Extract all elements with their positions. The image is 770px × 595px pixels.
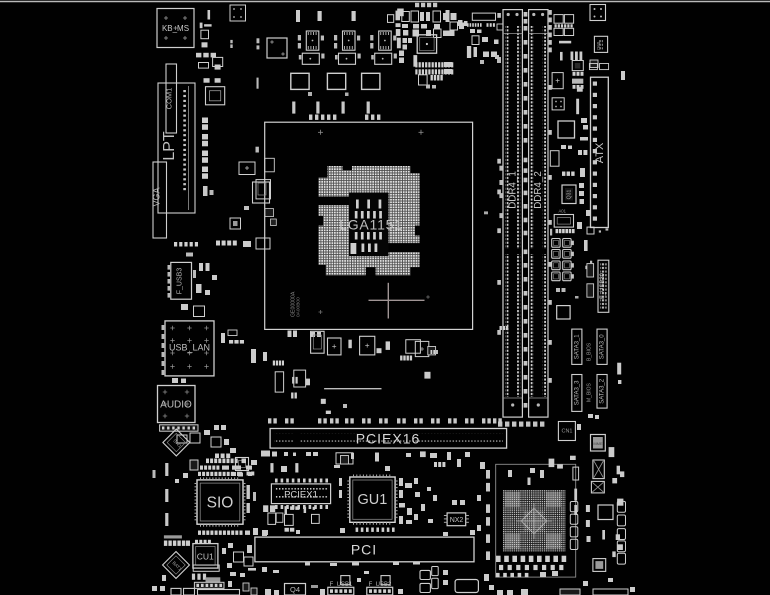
svg-text:SATA3_1: SATA3_1 [574,334,580,359]
svg-text:B_BIOS: B_BIOS [586,342,592,361]
svg-text:F_USB1: F_USB1 [330,582,353,588]
svg-text:PCI: PCI [351,542,377,558]
svg-text:PCIEX16: PCIEX16 [356,431,421,447]
svg-text:Q4: Q4 [290,585,300,594]
svg-text:SATA3_2: SATA3_2 [600,378,606,403]
svg-text:A01: A01 [559,209,567,214]
svg-text:NX2: NX2 [450,517,464,524]
svg-text:F_USB30: F_USB30 [600,272,606,299]
svg-text:LPT: LPT [161,131,178,161]
svg-text:ATX: ATX [594,142,606,163]
svg-text:M_BIOS: M_BIOS [586,382,592,402]
svg-text:F_USB3: F_USB3 [177,268,184,295]
svg-text:Q60: Q60 [596,41,601,50]
svg-text:Q31: Q31 [567,189,573,199]
svg-text:CN1: CN1 [561,429,572,435]
svg-text:COM1: COM1 [165,88,174,110]
svg-text:SATA3_0: SATA3_0 [600,334,606,359]
svg-text:GU1: GU1 [357,492,387,508]
svg-text:CU1: CU1 [197,552,214,562]
svg-text:SATA3_3: SATA3_3 [574,380,580,405]
svg-text:PCIEX1: PCIEX1 [284,490,318,501]
svg-text:0A00B00: 0A00B00 [296,297,302,317]
svg-text:DDR4_2: DDR4_2 [533,171,544,209]
svg-text:SIO: SIO [207,495,234,512]
svg-text:KB_MS: KB_MS [162,24,189,33]
svg-text:F_USB2: F_USB2 [369,582,392,588]
svg-text:DDR4_1: DDR4_1 [507,171,518,209]
svg-text:VGA: VGA [152,187,162,206]
svg-text:LGA1151: LGA1151 [339,216,403,232]
svg-text:MME: MME [593,441,603,446]
